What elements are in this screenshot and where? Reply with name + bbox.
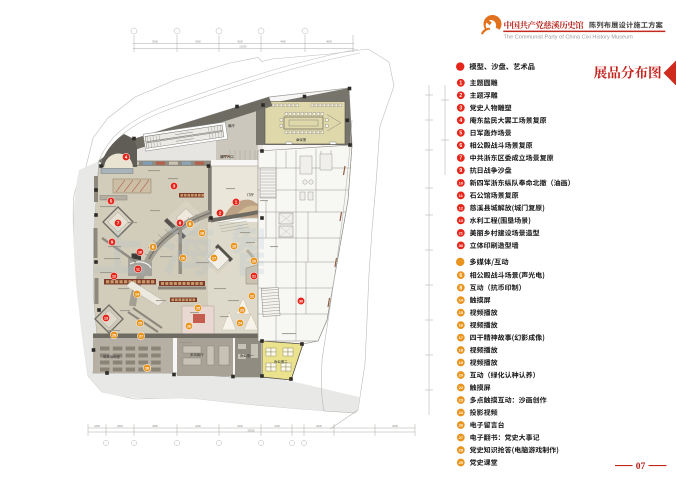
svg-text:13: 13: [104, 316, 108, 320]
svg-text:9: 9: [111, 240, 114, 245]
svg-text:3000: 3000: [316, 424, 322, 428]
svg-text:28: 28: [459, 447, 464, 452]
svg-text:6: 6: [179, 221, 182, 226]
svg-text:10: 10: [138, 250, 142, 254]
svg-text:8: 8: [459, 285, 462, 291]
svg-text:7: 7: [117, 221, 120, 226]
svg-text:4200: 4200: [237, 40, 243, 44]
svg-text:8: 8: [152, 245, 155, 250]
svg-text:15: 15: [138, 321, 142, 325]
svg-text:3: 3: [173, 184, 176, 189]
svg-text:4200: 4200: [237, 424, 243, 428]
svg-text:14: 14: [459, 298, 464, 303]
svg-text:The Communist Party of China C: The Communist Party of China Cixi Histor…: [504, 35, 634, 41]
svg-text:6: 6: [459, 143, 462, 149]
svg-text:17: 17: [459, 335, 464, 340]
svg-text:27: 27: [139, 334, 143, 338]
svg-text:33500: 33500: [247, 429, 255, 433]
svg-text:19: 19: [459, 360, 464, 365]
svg-text:18: 18: [459, 348, 464, 353]
svg-text:28: 28: [145, 366, 149, 370]
svg-text:20: 20: [459, 373, 464, 378]
svg-text:26: 26: [459, 422, 464, 427]
svg-text:19: 19: [232, 244, 236, 248]
svg-text:4400: 4400: [280, 40, 286, 44]
svg-text:27: 27: [459, 435, 464, 440]
svg-text:07: 07: [636, 462, 646, 472]
svg-text:3100: 3100: [274, 424, 280, 428]
svg-text:16: 16: [181, 256, 185, 260]
svg-text:22: 22: [250, 294, 254, 298]
svg-text:29: 29: [112, 333, 116, 337]
svg-text:15: 15: [459, 310, 464, 315]
svg-text:23: 23: [459, 397, 464, 402]
svg-text:2: 2: [219, 211, 222, 216]
svg-text:29: 29: [459, 460, 464, 465]
svg-text:30: 30: [299, 299, 303, 303]
svg-text:3: 3: [459, 106, 462, 112]
svg-text:26: 26: [187, 324, 191, 328]
svg-text:12: 12: [459, 205, 464, 210]
svg-text:4200: 4200: [195, 40, 201, 44]
svg-text:10: 10: [459, 180, 464, 185]
svg-text:24: 24: [459, 410, 464, 415]
svg-text:30: 30: [459, 243, 464, 248]
svg-text:16: 16: [459, 323, 464, 328]
svg-text:23: 23: [240, 308, 244, 312]
svg-text:20: 20: [252, 259, 256, 263]
svg-text:18: 18: [200, 231, 204, 235]
svg-text:2800: 2800: [117, 424, 123, 428]
svg-text:1: 1: [235, 200, 238, 205]
svg-text:5: 5: [110, 199, 113, 204]
svg-text:1: 1: [459, 81, 462, 87]
svg-text:17: 17: [212, 256, 216, 260]
svg-text:4300: 4300: [152, 424, 158, 428]
svg-text:4000: 4000: [392, 424, 398, 428]
svg-text:9: 9: [459, 168, 462, 174]
svg-text:7: 7: [459, 156, 462, 162]
svg-text:5: 5: [459, 131, 462, 137]
svg-text:6: 6: [459, 273, 462, 279]
svg-text:2: 2: [459, 93, 462, 99]
svg-text:25: 25: [196, 306, 200, 310]
svg-text:4800: 4800: [326, 40, 332, 44]
svg-text:21500: 21500: [239, 45, 247, 49]
svg-text:21: 21: [252, 274, 256, 278]
svg-text:3900: 3900: [152, 40, 158, 44]
svg-text:21: 21: [459, 230, 464, 235]
svg-text:4200: 4200: [195, 424, 201, 428]
svg-text:12: 12: [112, 274, 116, 278]
svg-text:1800: 1800: [94, 424, 100, 428]
svg-text:6: 6: [189, 222, 192, 227]
svg-text:4: 4: [125, 155, 128, 160]
svg-text:4: 4: [459, 118, 462, 124]
svg-text:22: 22: [459, 385, 464, 390]
svg-text:11: 11: [136, 267, 140, 271]
svg-text:13: 13: [459, 218, 464, 223]
